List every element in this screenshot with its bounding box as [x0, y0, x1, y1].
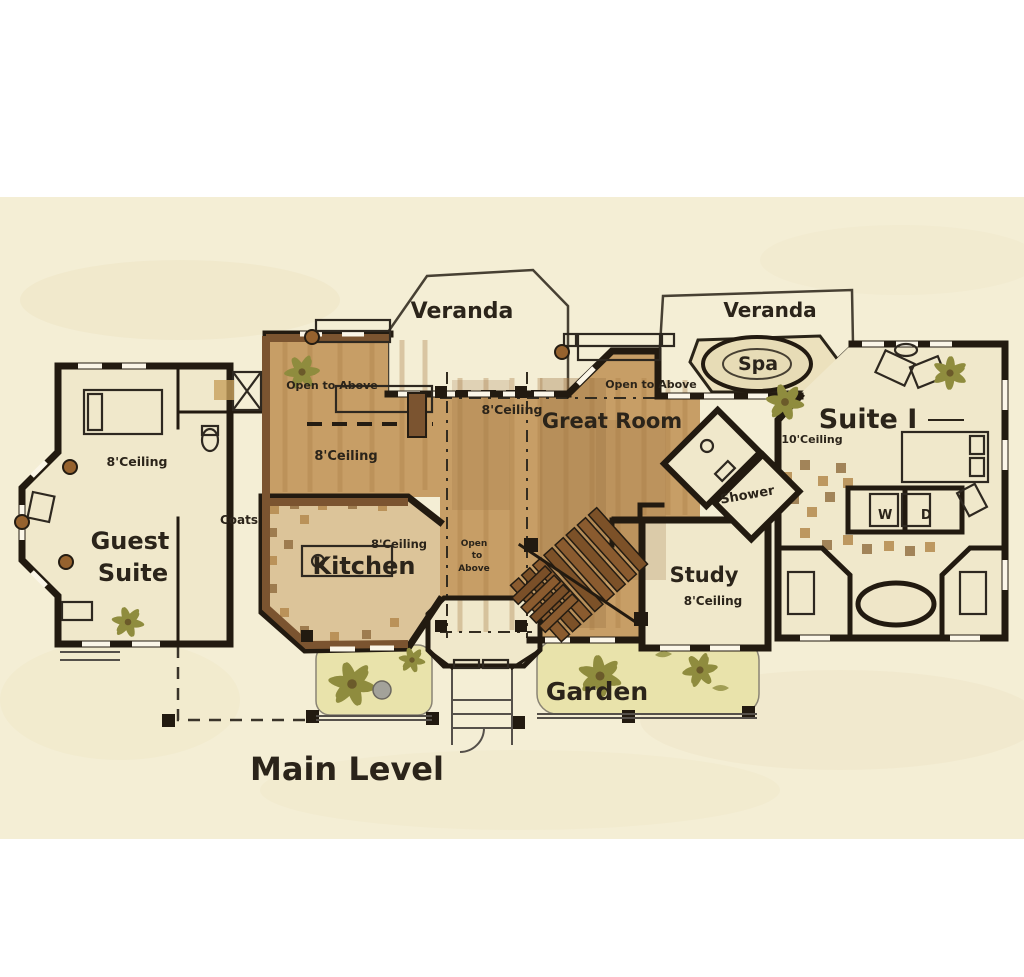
- suite-one-ceiling: 10'Ceiling: [781, 433, 842, 446]
- coats-label: Coats: [220, 513, 258, 527]
- study-ceiling: 8'Ceiling: [684, 594, 742, 608]
- stair-note-to: to: [472, 551, 483, 561]
- dining-ceiling: 8'Ceiling: [314, 449, 377, 464]
- kitchen-label: Kitchen: [313, 552, 416, 580]
- floor-plan-drawing: Veranda Veranda Spa Open to Above Open t…: [0, 0, 1024, 977]
- stair-note-above: Above: [458, 564, 490, 574]
- kitchen-ceiling: 8'Ceiling: [371, 537, 427, 551]
- level-title: Main Level: [250, 750, 444, 788]
- great-room-ceiling: 8'Ceiling: [482, 402, 543, 417]
- open-to-above-left: Open to Above: [286, 379, 378, 392]
- guest-suite-label-2: Suite: [98, 559, 168, 587]
- study-label: Study: [670, 563, 739, 587]
- great-room-label: Great Room: [542, 409, 682, 433]
- floor-plan-page: Veranda Veranda Spa Open to Above Open t…: [0, 0, 1024, 977]
- laundry-label: W D: [878, 508, 944, 523]
- guest-ceiling: 8'Ceiling: [107, 454, 168, 469]
- veranda-left-label: Veranda: [411, 299, 514, 324]
- open-to-above-right: Open to Above: [605, 378, 697, 391]
- veranda-right-label: Veranda: [723, 298, 816, 322]
- spa-label: Spa: [738, 353, 778, 375]
- garden-label: Garden: [546, 677, 648, 706]
- stair-note-open: Open: [461, 539, 488, 549]
- guest-suite-label-1: Guest: [91, 527, 170, 555]
- suite-one-label: Suite I: [819, 404, 918, 435]
